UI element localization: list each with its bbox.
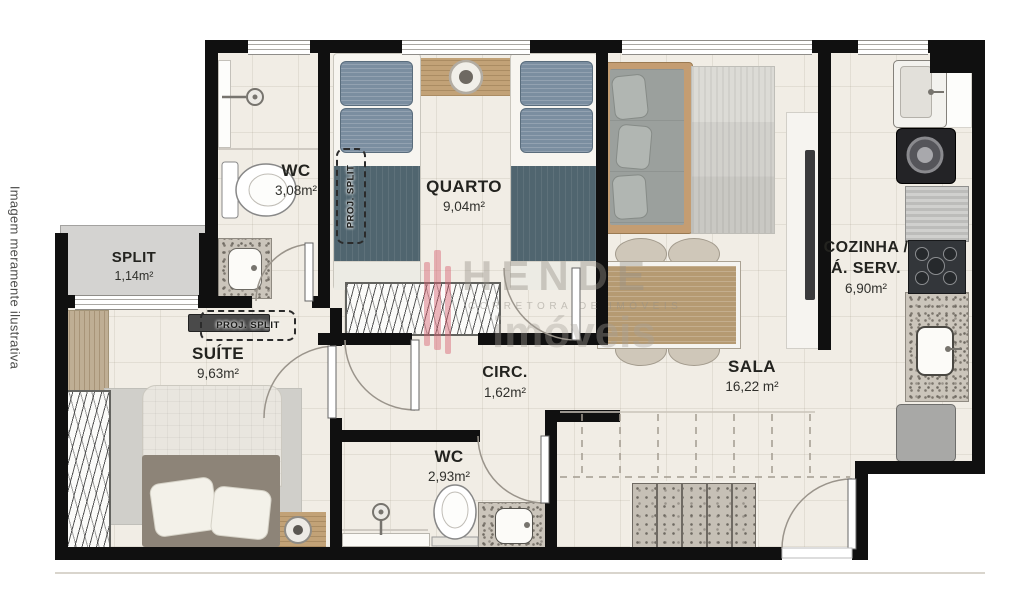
proj-split-label: PROJ. SPLIT: [346, 164, 357, 228]
suite-bed: [142, 385, 280, 547]
exterior-notch-bottomright: [868, 474, 1024, 614]
room-name: CIRC.: [482, 363, 528, 384]
wall: [330, 418, 342, 560]
wall: [855, 461, 985, 474]
room-area: 1,62m²: [482, 384, 528, 402]
room-label-quarto: QUARTO 9,04m²: [426, 176, 502, 216]
room-area: 2,93m²: [428, 468, 470, 486]
room-area: 6,90m²: [824, 280, 909, 298]
suite-closet: [63, 310, 109, 392]
room-label-cozinha: COZINHA / Á. SERV. 6,90m²: [824, 238, 909, 297]
wall: [855, 461, 868, 560]
wall-stub: [55, 233, 68, 295]
kitchen-counter: [905, 186, 969, 242]
sheet-fold: [511, 261, 597, 290]
shower-divider: [342, 529, 428, 531]
wall: [55, 295, 68, 560]
room-name: SALA: [725, 356, 778, 378]
plinth-line: [55, 572, 985, 574]
room-name: SUÍTE: [192, 343, 244, 365]
sofa-pillow: [612, 174, 649, 220]
pillow: [520, 61, 593, 106]
room-label-sala: SALA 16,22 m²: [725, 356, 778, 396]
wall-stub: [199, 233, 212, 295]
disclaimer-text: Imagem meramente ilustrativa: [8, 148, 23, 408]
room-area: 3,08m²: [275, 182, 317, 200]
sofa-pillow: [615, 124, 653, 171]
shower-glass: [218, 60, 231, 148]
shower-ledge: [342, 533, 430, 547]
tv: [805, 150, 815, 300]
room-name: WC: [428, 446, 470, 468]
wall: [312, 296, 330, 308]
fridge: [896, 404, 956, 462]
room-area: 1,14m²: [112, 268, 157, 284]
stairs-steps: [632, 483, 756, 549]
wall: [318, 40, 330, 308]
wall: [55, 547, 782, 560]
window: [858, 40, 928, 55]
quarto-headboard-shelf: [415, 58, 515, 96]
window: [248, 40, 310, 55]
wall: [342, 430, 480, 442]
wc-top-sink: [228, 248, 262, 290]
suite-wardrobe: [63, 390, 111, 551]
proj-split-box-suite: PROJ. SPLIT: [200, 310, 296, 341]
wall: [198, 295, 218, 308]
window: [75, 295, 198, 310]
tank-basin: [900, 66, 932, 118]
room-area: 9,04m²: [426, 198, 502, 216]
wall: [478, 333, 608, 345]
room-area: 9,63m²: [192, 365, 244, 383]
room-label-suite: SUÍTE 9,63m²: [192, 343, 244, 383]
room-name: WC: [275, 160, 317, 182]
wall: [596, 40, 608, 340]
room-label-wc-top: WC 3,08m²: [275, 160, 317, 200]
pillow: [520, 108, 593, 153]
wall: [972, 40, 985, 474]
pillow: [210, 485, 273, 541]
blanket: [511, 166, 597, 261]
room-name: QUARTO: [426, 176, 502, 198]
quarto-bed-right: [510, 53, 598, 290]
room-label-wc-bottom: WC 2,93m²: [428, 446, 470, 486]
pillow: [149, 476, 220, 538]
stove: [908, 240, 966, 294]
dining-table: [598, 262, 740, 348]
window: [402, 40, 530, 55]
wall: [330, 308, 342, 346]
room-name-line2: Á. SERV.: [824, 259, 909, 280]
room-label-split: SPLIT 1,14m²: [112, 248, 157, 284]
sofa: [603, 62, 693, 234]
pillow: [340, 61, 413, 106]
room-name: SPLIT: [112, 248, 157, 268]
pillow: [340, 108, 413, 153]
room-name: COZINHA /: [824, 238, 909, 259]
floor-plan-canvas: Imagem meramente ilustrativa: [0, 0, 1024, 614]
window: [622, 40, 812, 55]
wc-bottom-sink: [495, 508, 533, 544]
sala-rug: [691, 66, 775, 234]
proj-split-box-quarto: PROJ. SPLIT: [336, 148, 366, 244]
proj-split-label: PROJ. SPLIT: [216, 320, 280, 331]
wall: [545, 410, 557, 560]
quarto-wardrobe: [345, 282, 501, 336]
room-label-circ: CIRC. 1,62m²: [482, 363, 528, 401]
kitchen-sink: [916, 326, 954, 376]
shower-divider: [218, 148, 318, 150]
washing-machine: [896, 128, 956, 184]
nightstand: [272, 512, 326, 547]
room-area: 16,22 m²: [725, 378, 778, 396]
wall: [818, 40, 831, 350]
sofa-pillow: [611, 73, 649, 120]
